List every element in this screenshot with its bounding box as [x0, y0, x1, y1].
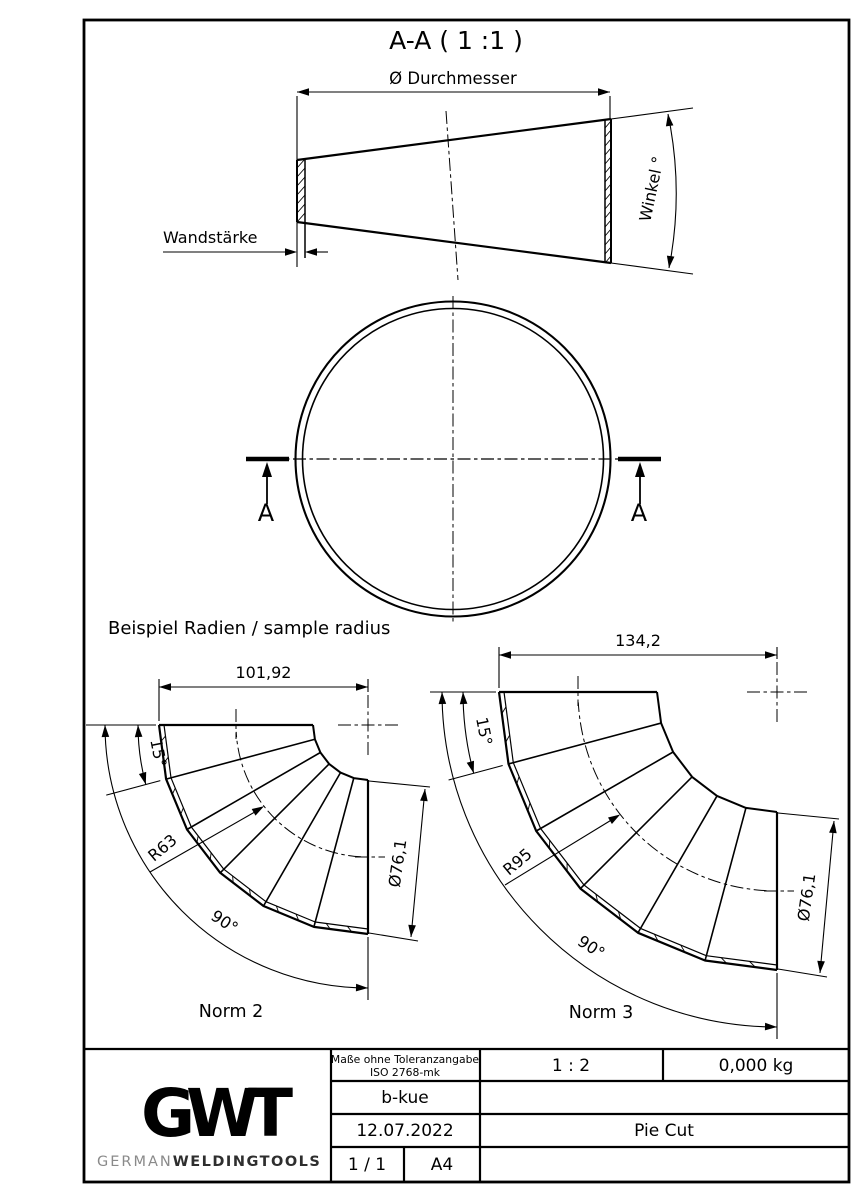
scale-value: 1 : 2 [552, 1056, 590, 1076]
cone-top-edge [297, 119, 611, 160]
cone-axis-centerline [446, 111, 458, 280]
samples-heading: Beispiel Radien / sample radius [108, 618, 390, 639]
pie-segment-cut-line [508, 723, 661, 764]
dim-arrowhead [667, 256, 675, 268]
hatch-tick [297, 213, 305, 222]
brand-light: GERMAN [97, 1154, 173, 1170]
norm-name: Norm 3 [569, 1003, 633, 1023]
cone-bottom-edge [297, 222, 611, 263]
section-label-a-left: A [258, 499, 275, 527]
dia-dim-line [411, 789, 425, 937]
hatch-tick [517, 776, 519, 784]
segment-angle-text: 15° [146, 737, 170, 768]
cone-angle-label: Winkel ° [635, 155, 667, 224]
section-view-cone: A-A ( 1 :1 )Ø DurchmesserWinkel °Wandstä… [163, 26, 693, 280]
hatch-tick [297, 186, 305, 195]
pie-segment-cut-line [264, 773, 341, 906]
pie-segment-cut-line [187, 753, 320, 830]
dim-arrowhead [102, 725, 110, 737]
dim-arrowhead [666, 114, 674, 126]
dim-arrowhead [829, 821, 837, 833]
bend-radius-text: R63 [144, 830, 180, 865]
dim-arrowhead [159, 683, 171, 691]
pie-segment-cut-line [220, 764, 329, 873]
bend-angle-text: 90° [574, 931, 608, 962]
pie-segment-cut-line [638, 796, 717, 933]
dim-arrowhead [460, 692, 468, 704]
logo-letter-t: T [248, 1075, 293, 1152]
brand-text: GERMANWELDINGTOOLS [97, 1154, 321, 1170]
winkel-arc [668, 114, 676, 268]
segment-angle-arc [463, 692, 474, 773]
dim-arrowhead [305, 248, 317, 256]
pie-segment-cut-line [166, 739, 315, 779]
cad-drawing: A-A ( 1 :1 )Ø DurchmesserWinkel °Wandstä… [0, 0, 868, 1199]
dia-dim-line [820, 821, 834, 973]
pie-segment-cut-line [536, 752, 673, 831]
dim-arrowhead [765, 1023, 777, 1031]
dim-arrowhead [817, 961, 825, 973]
pie-segment-cut-line [580, 777, 692, 889]
dim-arrowhead [356, 683, 368, 691]
section-title: A-A ( 1 :1 ) [389, 26, 523, 55]
width-dim-text: 101,92 [236, 663, 292, 682]
segment-angle-text: 15° [472, 716, 496, 747]
weight-value: 0,000 kg [719, 1056, 794, 1076]
hatch-tick [297, 204, 305, 213]
dim-arrowhead [139, 772, 146, 785]
section-label-a-right: A [631, 499, 648, 527]
hatch-tick [528, 803, 530, 811]
dim-arrowhead [765, 651, 777, 659]
brand-bold: WELDINGTOOLS [173, 1154, 322, 1170]
tolerance-note-line2: ISO 2768-mk [370, 1066, 441, 1079]
hatch-tick [172, 788, 175, 794]
paper-format: A4 [431, 1155, 453, 1175]
date-value: 12.07.2022 [356, 1121, 453, 1141]
top-view-circle: AABeispiel Radien / sample radius [108, 296, 661, 639]
hatch-tick [297, 168, 305, 177]
dim-arrowhead [608, 815, 620, 825]
dim-arrowhead [356, 984, 368, 992]
dia-dim-text: Ø76,1 [385, 838, 411, 888]
cone-diameter-label: Ø Durchmesser [389, 69, 517, 88]
hatch-tick [297, 177, 305, 186]
dim-arrowhead [439, 692, 447, 704]
first-cut-ext [449, 766, 503, 780]
pie-segment-cut-line [705, 808, 746, 961]
pie-cut-norm2: 101,9215°90°R63Ø76,1Norm 2 [86, 663, 430, 1022]
width-dim-text: 134,2 [615, 631, 661, 650]
ext-line [778, 813, 839, 819]
dia-dim-text: Ø76,1 [794, 872, 820, 922]
section-arrowhead [635, 462, 645, 477]
title-block: Maße ohne ToleranzangabeISO 2768-mk1 : 2… [84, 1049, 849, 1182]
hatch-tick [233, 876, 234, 883]
sheet-number: 1 / 1 [348, 1155, 386, 1175]
drawing-page: A-A ( 1 :1 )Ø DurchmesserWinkel °Wandstä… [0, 0, 868, 1199]
ext-line [369, 781, 430, 787]
dim-arrowhead [408, 925, 416, 937]
author-value: b-kue [381, 1088, 428, 1108]
part-name: Pie Cut [634, 1121, 694, 1141]
norm-name: Norm 2 [199, 1002, 263, 1022]
hatch-tick [210, 853, 211, 860]
bend-angle-text: 90° [208, 906, 242, 937]
dim-arrowhead [499, 651, 511, 659]
section-arrowhead [262, 462, 272, 477]
pie-segment-cut-line [314, 778, 354, 927]
hatch-tick [297, 195, 305, 204]
pie-cut-norm3: 134,215°90°R95Ø76,1Norm 3 [430, 631, 839, 1039]
dim-arrowhead [467, 761, 474, 774]
angle-ext-top [611, 108, 693, 119]
dim-arrowhead [420, 789, 428, 801]
hatch-tick [197, 836, 198, 843]
cone-wall-label: Wandstärke [163, 228, 257, 247]
dim-arrowhead [285, 248, 297, 256]
tolerance-note-line1: Maße ohne Toleranzangabe [331, 1053, 480, 1066]
hatch-tick [181, 808, 184, 815]
dim-arrowhead [297, 88, 309, 96]
dim-arrowhead [252, 806, 264, 815]
dim-arrowhead [135, 725, 143, 737]
bend-radius-text: R95 [499, 844, 535, 879]
dim-arrowhead [598, 88, 610, 96]
angle-ext-bottom [611, 263, 693, 274]
